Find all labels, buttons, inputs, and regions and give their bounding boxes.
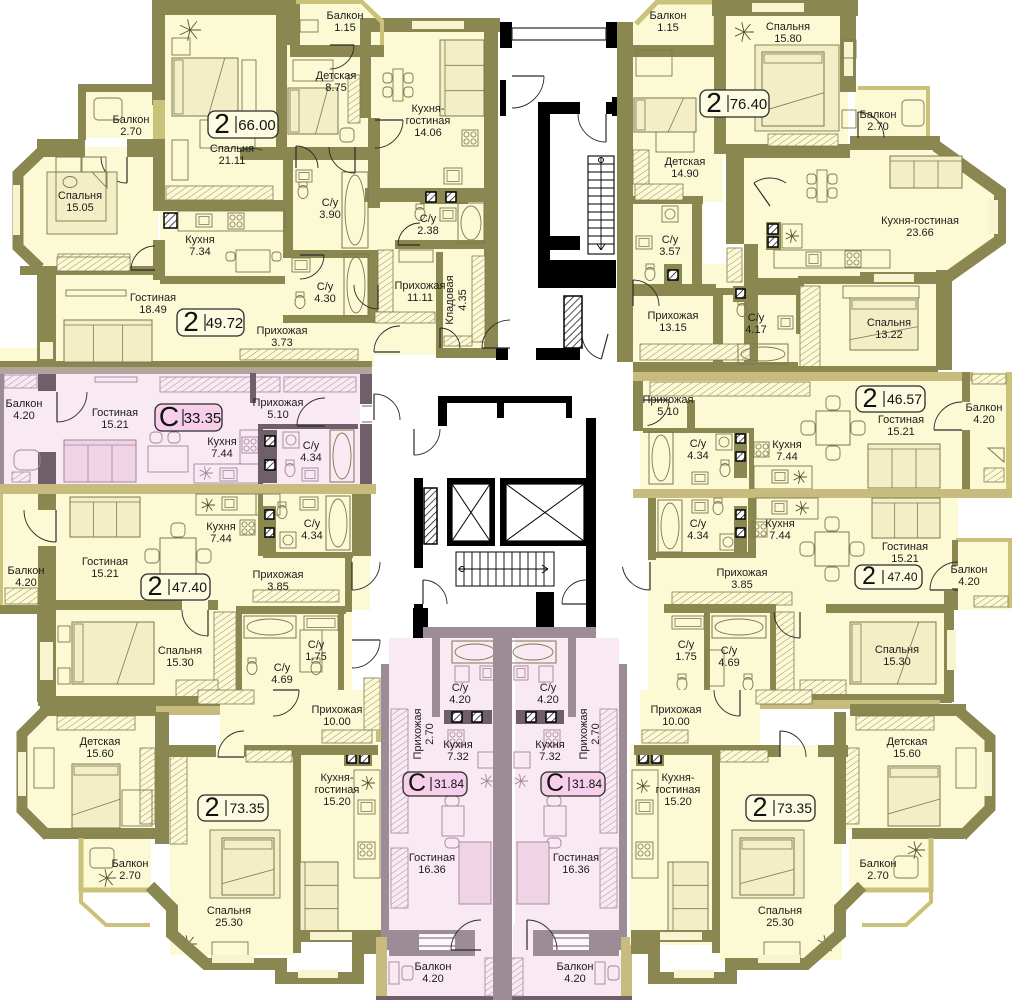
svg-text:Балкон: Балкон	[113, 114, 150, 126]
svg-text:4.20: 4.20	[958, 576, 979, 588]
svg-text:С/у: С/у	[322, 197, 339, 209]
svg-text:Прихожая: Прихожая	[253, 569, 304, 581]
svg-text:4.20: 4.20	[449, 694, 470, 706]
svg-text:4.17: 4.17	[745, 324, 766, 336]
svg-text:С/у: С/у	[721, 645, 738, 657]
svg-text:Прихожая: Прихожая	[253, 397, 304, 409]
svg-text:4.20: 4.20	[973, 414, 994, 426]
svg-text:5.10: 5.10	[267, 409, 288, 421]
svg-text:4.69: 4.69	[718, 657, 739, 669]
svg-text:Кухня: Кухня	[765, 518, 794, 530]
svg-text:4.30: 4.30	[314, 293, 335, 305]
svg-text:Гостиная: Гостиная	[82, 556, 128, 568]
svg-text:2.70: 2.70	[867, 870, 888, 882]
svg-text:Кухня: Кухня	[206, 521, 235, 533]
svg-text:Балкон: Балкон	[415, 961, 452, 973]
svg-text:Гостиная: Гостиная	[130, 292, 176, 304]
svg-text:Кухня: Кухня	[185, 234, 214, 246]
svg-text:Прихожая: Прихожая	[412, 708, 424, 759]
svg-text:73.35: 73.35	[777, 800, 812, 816]
svg-text:2: 2	[706, 87, 722, 118]
svg-text:С/у: С/у	[678, 639, 695, 651]
svg-text:Спальня: Спальня	[210, 143, 254, 155]
svg-text:76.40: 76.40	[730, 96, 768, 113]
svg-text:Прихожая: Прихожая	[651, 704, 702, 716]
svg-text:С/у: С/у	[308, 639, 325, 651]
svg-text:7.32: 7.32	[447, 751, 468, 763]
svg-text:15.20: 15.20	[323, 796, 351, 808]
svg-text:4.34: 4.34	[300, 452, 321, 464]
svg-text:2: 2	[147, 571, 162, 601]
svg-text:47.40: 47.40	[172, 579, 207, 595]
svg-text:С/у: С/у	[317, 281, 334, 293]
svg-text:15.21: 15.21	[887, 426, 915, 438]
svg-text:7.44: 7.44	[211, 448, 232, 460]
svg-text:73.35: 73.35	[229, 800, 264, 816]
svg-text:13.15: 13.15	[659, 322, 687, 334]
svg-text:Прихожая: Прихожая	[257, 325, 308, 337]
svg-text:2.70: 2.70	[119, 870, 140, 882]
svg-text:С: С	[408, 769, 426, 797]
svg-text:Балкон: Балкон	[951, 564, 988, 576]
svg-text:2: 2	[862, 383, 877, 413]
svg-text:Детская: Детская	[316, 70, 357, 82]
svg-text:4.20: 4.20	[564, 973, 585, 985]
svg-text:4.20: 4.20	[15, 577, 36, 589]
svg-text:25.30: 25.30	[215, 917, 243, 929]
svg-text:С/у: С/у	[452, 682, 469, 694]
svg-text:4.34: 4.34	[687, 450, 708, 462]
svg-text:Прихожая: Прихожая	[312, 704, 363, 716]
svg-text:15.60: 15.60	[86, 748, 114, 760]
svg-text:4.69: 4.69	[271, 674, 292, 686]
svg-text:14.90: 14.90	[671, 168, 699, 180]
svg-text:15.30: 15.30	[166, 657, 194, 669]
svg-text:31.84: 31.84	[572, 777, 602, 791]
svg-text:3.90: 3.90	[319, 209, 340, 221]
svg-text:15.21: 15.21	[101, 419, 129, 431]
svg-text:Кухня: Кухня	[207, 436, 236, 448]
svg-text:2.70: 2.70	[590, 723, 602, 744]
svg-text:Балкон: Балкон	[327, 10, 364, 22]
svg-text:Прихожая: Прихожая	[717, 567, 768, 579]
svg-text:15.21: 15.21	[891, 553, 919, 565]
svg-text:3.73: 3.73	[271, 337, 292, 349]
svg-text:5.10: 5.10	[657, 406, 678, 418]
svg-text:Балкон: Балкон	[650, 10, 687, 22]
svg-text:1.15: 1.15	[657, 22, 678, 34]
svg-text:4.34: 4.34	[301, 530, 322, 542]
svg-text:18.49: 18.49	[139, 304, 167, 316]
svg-text:47.40: 47.40	[887, 570, 917, 584]
svg-text:15.21: 15.21	[91, 568, 119, 580]
svg-text:33.35: 33.35	[184, 410, 222, 427]
svg-text:Прихожая: Прихожая	[648, 310, 699, 322]
svg-text:Балкон: Балкон	[6, 398, 43, 410]
svg-text:4.34: 4.34	[687, 530, 708, 542]
svg-text:Кухня: Кухня	[535, 739, 564, 751]
svg-text:7.32: 7.32	[539, 751, 560, 763]
svg-text:11.11: 11.11	[407, 292, 433, 304]
svg-text:15.30: 15.30	[883, 656, 911, 668]
svg-text:16.36: 16.36	[418, 864, 446, 876]
svg-text:гостиная: гостиная	[656, 784, 701, 796]
svg-text:2: 2	[204, 792, 219, 822]
svg-text:Спальня: Спальня	[58, 190, 102, 202]
svg-text:13.22: 13.22	[875, 329, 903, 341]
svg-text:4.35: 4.35	[457, 289, 469, 310]
svg-text:16.36: 16.36	[562, 864, 590, 876]
svg-text:Балкон: Балкон	[966, 402, 1003, 414]
svg-text:1.75: 1.75	[305, 651, 326, 663]
svg-text:Прихожая: Прихожая	[395, 280, 446, 292]
svg-text:Спальня: Спальня	[758, 905, 802, 917]
svg-text:гостиная: гостиная	[406, 115, 451, 127]
svg-text:Кухня: Кухня	[772, 439, 801, 451]
svg-text:С/у: С/у	[690, 518, 707, 530]
svg-text:Балкон: Балкон	[8, 565, 45, 577]
svg-text:1.15: 1.15	[334, 22, 355, 34]
svg-text:Гостиная: Гостиная	[878, 414, 924, 426]
svg-text:Балкон: Балкон	[860, 109, 897, 121]
svg-text:2: 2	[752, 792, 767, 822]
svg-text:14.06: 14.06	[414, 127, 442, 139]
svg-text:23.66: 23.66	[906, 227, 934, 239]
svg-text:4.20: 4.20	[13, 410, 34, 422]
svg-text:7.44: 7.44	[776, 451, 797, 463]
svg-text:4.20: 4.20	[422, 973, 443, 985]
svg-text:21.11: 21.11	[219, 155, 246, 167]
svg-text:3.85: 3.85	[267, 581, 288, 593]
svg-text:гостиная: гостиная	[315, 784, 360, 796]
svg-text:С/у: С/у	[304, 518, 321, 530]
svg-text:2: 2	[214, 108, 230, 139]
svg-text:15.60: 15.60	[893, 748, 921, 760]
svg-text:Кухня-: Кухня-	[320, 772, 353, 784]
svg-text:Прихожая: Прихожая	[643, 394, 694, 406]
svg-text:2: 2	[183, 306, 199, 337]
svg-text:С/у: С/у	[662, 234, 679, 246]
svg-text:Гостиная: Гостиная	[882, 541, 928, 553]
svg-text:7.34: 7.34	[189, 246, 210, 258]
svg-text:Гостиная: Гостиная	[92, 407, 138, 419]
svg-text:Детская: Детская	[665, 156, 706, 168]
svg-text:Спальня: Спальня	[875, 644, 919, 656]
svg-text:Балкон: Балкон	[557, 961, 594, 973]
svg-text:25.30: 25.30	[766, 917, 794, 929]
svg-text:49.72: 49.72	[206, 315, 244, 332]
svg-text:Кухня-гостиная: Кухня-гостиная	[881, 215, 959, 227]
svg-text:С/у: С/у	[303, 440, 320, 452]
svg-text:Кухня: Кухня	[443, 739, 472, 751]
svg-text:С/у: С/у	[274, 662, 291, 674]
svg-text:Гостиная: Гостиная	[409, 852, 455, 864]
svg-text:Кухня-: Кухня-	[661, 772, 694, 784]
svg-text:Прихожая: Прихожая	[578, 708, 590, 759]
svg-text:1.75: 1.75	[675, 651, 696, 663]
svg-text:3.85: 3.85	[731, 579, 752, 591]
svg-text:8.75: 8.75	[325, 82, 346, 94]
svg-text:15.80: 15.80	[774, 33, 802, 45]
svg-text:С/у: С/у	[690, 438, 707, 450]
svg-text:31.84: 31.84	[434, 777, 464, 791]
svg-text:4.20: 4.20	[537, 694, 558, 706]
svg-text:66.00: 66.00	[238, 117, 276, 134]
svg-text:3.57: 3.57	[659, 246, 680, 258]
svg-text:2.70: 2.70	[120, 126, 141, 138]
svg-text:2: 2	[862, 562, 876, 590]
svg-text:10.00: 10.00	[323, 716, 351, 728]
svg-text:Спальня: Спальня	[867, 317, 911, 329]
svg-text:2.38: 2.38	[417, 225, 438, 237]
svg-text:15.20: 15.20	[664, 796, 692, 808]
svg-text:7.44: 7.44	[210, 533, 231, 545]
svg-text:С: С	[159, 401, 179, 432]
svg-text:Кухня-: Кухня-	[411, 103, 444, 115]
svg-text:С/у: С/у	[540, 682, 557, 694]
svg-text:С/у: С/у	[748, 312, 765, 324]
svg-text:Детская: Детская	[887, 736, 928, 748]
svg-text:2.70: 2.70	[424, 723, 436, 744]
svg-text:Детская: Детская	[80, 736, 121, 748]
svg-text:Балкон: Балкон	[112, 858, 149, 870]
svg-text:10.00: 10.00	[662, 716, 690, 728]
svg-text:С/у: С/у	[420, 213, 437, 225]
svg-text:Спальня: Спальня	[766, 21, 810, 33]
svg-text:46.57: 46.57	[887, 391, 922, 407]
svg-text:Спальня: Спальня	[158, 645, 202, 657]
svg-text:15.05: 15.05	[66, 202, 94, 214]
svg-text:Балкон: Балкон	[860, 858, 897, 870]
svg-text:С: С	[546, 769, 564, 797]
svg-text:Гостиная: Гостиная	[553, 852, 599, 864]
svg-text:7.44: 7.44	[769, 530, 790, 542]
svg-text:2.70: 2.70	[867, 121, 888, 133]
svg-text:Кладовая: Кладовая	[444, 275, 456, 324]
svg-text:Спальня: Спальня	[207, 905, 251, 917]
